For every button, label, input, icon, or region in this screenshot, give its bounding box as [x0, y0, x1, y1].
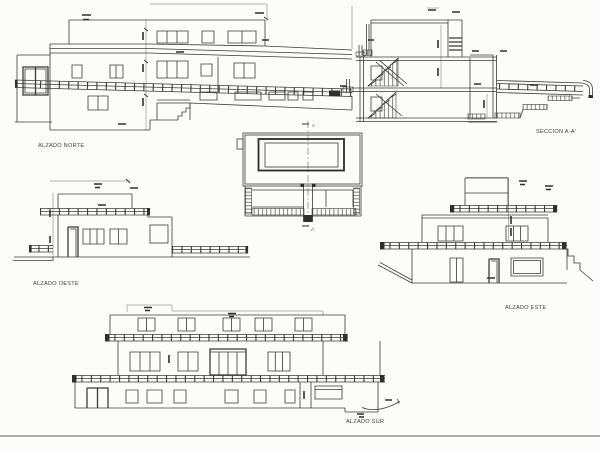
sur-ground-floor — [75, 382, 378, 412]
sur-dimension-lines — [127, 305, 323, 315]
este-mid-windows — [438, 226, 528, 241]
seccion-structure — [352, 55, 497, 122]
plan-pergola-band — [252, 209, 304, 216]
seccion-terrace-step — [523, 105, 547, 110]
drawing-sheet: ALZADO NORTE SECCION A-A' — [0, 0, 600, 450]
sur-attic-railing — [105, 335, 348, 342]
seccion-walkway-hook — [583, 81, 593, 96]
alzado-oeste-view: ALZADO OESTE — [13, 179, 250, 287]
oeste-building-outline — [58, 194, 172, 257]
oeste-dimension-lines — [50, 181, 130, 257]
alzado-oeste-label: ALZADO OESTE — [33, 281, 79, 287]
este-ground-windows — [450, 258, 543, 282]
plan-section-mark-bottom: A' — [311, 227, 315, 232]
plan-left-notch — [237, 139, 243, 149]
seccion-walkway — [497, 81, 583, 96]
elevations-svg: ALZADO NORTE SECCION A-A' — [0, 0, 600, 450]
oeste-ground-line — [13, 257, 250, 261]
oeste-door — [68, 227, 78, 257]
sur-ground-windows — [126, 386, 342, 403]
este-low-railing — [380, 243, 567, 250]
oeste-left-railing — [29, 246, 53, 253]
alzado-sur-view: ALZADO SUR — [72, 305, 400, 425]
plan-pergola-band — [312, 209, 356, 216]
roof-plan-view: A A' — [237, 121, 362, 232]
oeste-parapet-railing — [40, 209, 150, 216]
norte-dark-post — [329, 91, 340, 97]
alzado-norte-view: ALZADO NORTE — [15, 4, 352, 149]
seccion-dimension-lines — [427, 8, 487, 118]
alzado-sur-label: ALZADO SUR — [346, 419, 384, 425]
seccion-terrace-step — [548, 96, 572, 101]
norte-mid-windows — [72, 57, 255, 92]
norte-dim-marks — [82, 13, 347, 124]
oeste-windows — [83, 229, 127, 244]
este-door — [489, 259, 499, 283]
norte-attic-windows — [157, 31, 256, 43]
norte-railing — [15, 80, 352, 97]
seccion-roof-block — [371, 20, 462, 57]
este-attic — [465, 178, 508, 205]
sur-door — [87, 388, 108, 408]
plan-hatch-strip-left — [246, 188, 252, 214]
sur-low-railing — [72, 376, 385, 383]
norte-parapet-band — [50, 44, 352, 59]
seccion-aa-view: SECCION A-A' — [343, 8, 593, 135]
oeste-annex-window — [150, 225, 168, 243]
este-mid-floor — [422, 215, 548, 242]
alzado-este-label: ALZADO ESTE — [505, 305, 546, 311]
este-top-railing — [450, 206, 557, 213]
sur-attic-windows — [138, 318, 312, 331]
sur-ground-curve — [362, 399, 400, 410]
plan-section-mark-top: A — [312, 123, 315, 128]
alzado-norte-label: ALZADO NORTE — [38, 143, 84, 149]
norte-stair-house — [157, 100, 190, 120]
seccion-walkway-posts — [499, 86, 583, 89]
norte-building-outline — [15, 20, 352, 130]
plan-pool — [259, 139, 345, 171]
seccion-terrace-step — [495, 113, 520, 118]
este-ground-slopes — [378, 263, 412, 284]
seccion-aa-label: SECCION A-A' — [536, 129, 576, 135]
alzado-este-view: ALZADO ESTE — [378, 178, 593, 312]
sur-mid-floor — [118, 341, 380, 375]
